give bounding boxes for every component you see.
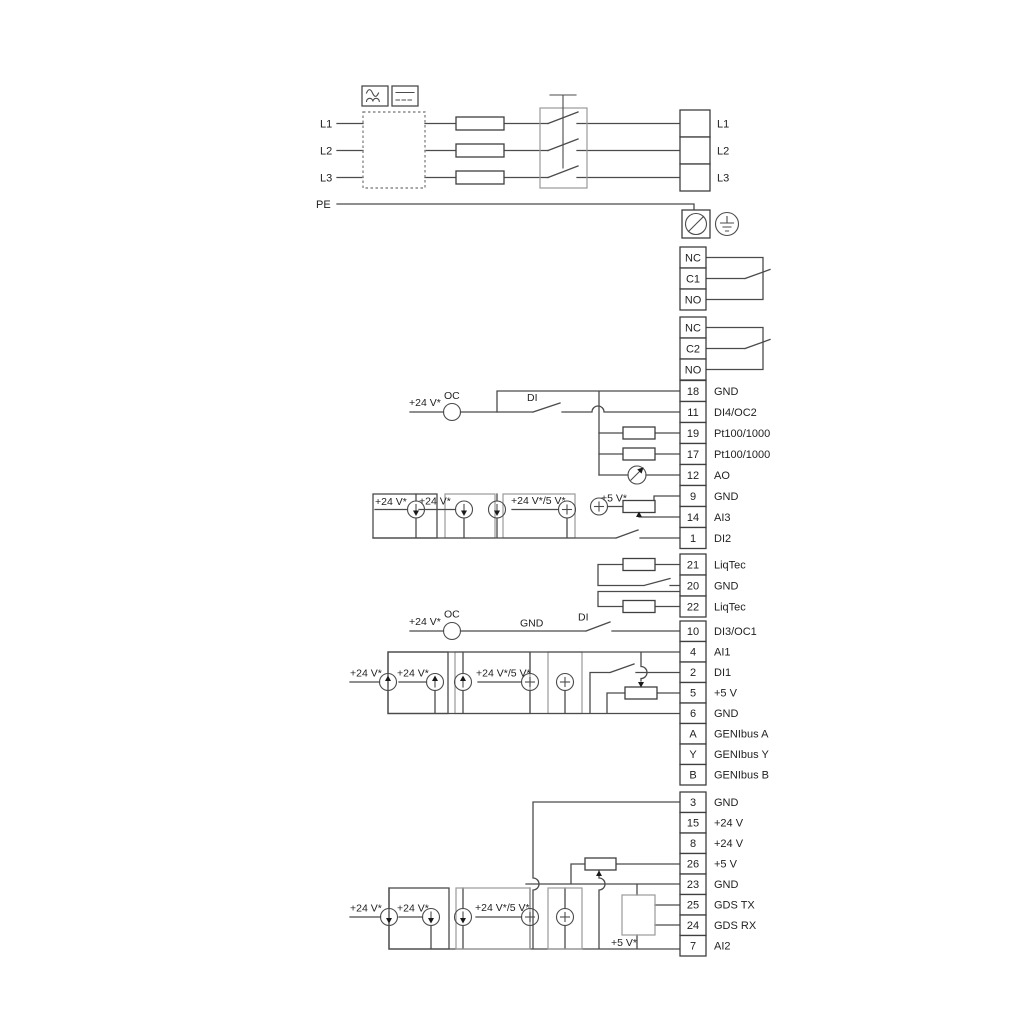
wiper-arrow-icon	[596, 871, 602, 877]
annotation-label: OC	[444, 390, 460, 402]
fuse-l1	[456, 117, 504, 130]
annotation-label: +24 V*	[397, 668, 429, 680]
annotation-label: +24 V*	[397, 903, 429, 915]
fuse-l3	[456, 171, 504, 184]
terminal-number: 21	[687, 559, 699, 571]
annotation-label: +24 V*/5 V*	[475, 902, 530, 914]
liqtec-wiring	[598, 559, 680, 613]
terminal-label: LiqTec	[714, 601, 746, 613]
terminal-label: GND	[714, 879, 739, 891]
annotation-label: +5 V*	[611, 937, 637, 949]
terminal-number: 24	[687, 920, 699, 932]
terminal-number: 25	[687, 900, 699, 912]
annotation-label: +24 V*/5 V*	[511, 495, 566, 507]
terminal-number: 12	[687, 470, 699, 482]
terminal-label: GND	[714, 386, 739, 398]
terminal-label: GDS RX	[714, 920, 757, 932]
terminal-label: DI1	[714, 667, 731, 679]
terminal-label: L3	[717, 172, 729, 184]
terminal-number: 7	[690, 941, 696, 953]
emc-filter-box	[363, 112, 425, 188]
wire-run	[337, 124, 694, 211]
open-collector-icon	[444, 404, 461, 421]
mains-in-label: L3	[320, 173, 332, 185]
annotation-label: DI	[578, 612, 589, 624]
gds-sensor-box	[622, 895, 655, 935]
terminal-block-relay1: NCC1NO	[680, 247, 706, 310]
earth-terminal	[682, 210, 710, 238]
terminal-number: 6	[690, 708, 696, 720]
terminal-label: GENIbus A	[714, 729, 769, 741]
protective-earth-icon	[716, 213, 739, 236]
terminal-number: 2	[690, 667, 696, 679]
mains-section	[337, 86, 739, 238]
relay1-wiring	[706, 258, 770, 300]
annotation-label: OC	[444, 609, 460, 621]
terminal-number: 8	[690, 838, 696, 850]
terminal-number: 22	[687, 601, 699, 613]
terminal-label: GND	[714, 797, 739, 809]
annotation-label: +24 V*	[375, 496, 407, 508]
ac-symbol-icon	[362, 86, 388, 106]
terminal-number: 11	[687, 407, 698, 419]
terminal-number: 4	[690, 647, 696, 659]
terminal-block-io3: 10DI3/OC14AI12DI15+5 V6GNDAGENIbus AYGEN…	[680, 621, 769, 785]
option-bracket	[455, 652, 530, 714]
terminal-number: 5	[690, 688, 696, 700]
annotation-label: DI	[527, 392, 538, 404]
terminal-label: L1	[717, 118, 729, 130]
wire-run	[410, 622, 680, 631]
current-source-icon	[456, 501, 473, 518]
terminal-number: 15	[687, 818, 699, 830]
annotations: L1 L2 L3 PE +24 V* OC DI +24 V* +24 V* +…	[316, 119, 637, 950]
mains-in-label: L2	[320, 146, 332, 158]
wire-run	[706, 258, 770, 300]
terminal-number: 23	[687, 879, 699, 891]
mains-in-label: L1	[320, 119, 332, 131]
terminal-number: NC	[685, 252, 701, 264]
terminal-number: B	[689, 770, 696, 782]
terminal-label: DI3/OC1	[714, 626, 757, 638]
terminal-label: DI4/OC2	[714, 407, 757, 419]
open-collector-icon	[444, 623, 461, 640]
terminal-label: GENIbus Y	[714, 749, 769, 761]
terminal-label: +5 V	[714, 859, 738, 871]
terminal-label: AO	[714, 470, 730, 482]
fuse-l2	[456, 144, 504, 157]
analog-output-meter-icon	[628, 466, 646, 484]
terminal-number: 26	[687, 859, 699, 871]
option-bracket	[456, 888, 530, 949]
terminal-block-relay2: NCC2NO	[680, 317, 706, 380]
wire-run	[410, 403, 680, 412]
terminal-label: LiqTec	[714, 559, 746, 571]
terminal-number: C2	[686, 343, 700, 355]
terminal-block-mains-out: L1L2L3	[680, 110, 729, 191]
wire-run	[350, 802, 680, 949]
terminal-block-io1: 18GND11DI4/OC219Pt100/100017Pt100/100012…	[680, 381, 770, 549]
terminal-number: NC	[685, 322, 701, 334]
terminal-number: 19	[687, 428, 699, 440]
terminal-label: AI2	[714, 941, 731, 953]
terminal-number: A	[689, 729, 697, 741]
current-source-icon	[427, 674, 444, 691]
annotation-label: +24 V*	[419, 496, 451, 508]
terminal-label: L2	[717, 145, 729, 157]
voltage-source-icon	[557, 909, 574, 926]
annotation-label: +24 V*	[409, 397, 441, 409]
wiring-diagram: L1L2L3 NCC1NO NCC2NO 18GND11DI4/OC219Pt1…	[0, 0, 1024, 1024]
terminal-label: DI2	[714, 533, 731, 545]
terminal-number: 9	[690, 491, 696, 503]
wire-run	[350, 652, 680, 714]
terminal-block-io4: 3GND15+24 V8+24 V26+5 V23GND25GDS TX24GD…	[680, 792, 757, 956]
relay2-wiring	[706, 328, 770, 370]
potentiometer	[623, 501, 655, 513]
annotation-label: +24 V*/5 V*	[476, 668, 531, 680]
terminal-label: +5 V	[714, 688, 738, 700]
annotation-label: +5 V*	[601, 493, 627, 505]
terminal-number: 3	[690, 797, 696, 809]
pe-label: PE	[316, 199, 331, 211]
current-source-icon	[455, 909, 472, 926]
terminal-label: +24 V	[714, 818, 744, 830]
terminal-number: Y	[689, 749, 697, 761]
annotation-label: GND	[520, 618, 544, 630]
terminal-cell	[680, 164, 710, 191]
terminal-label: AI1	[714, 647, 731, 659]
terminal-label: GDS TX	[714, 900, 755, 912]
terminal-label: Pt100/1000	[714, 449, 770, 461]
terminal-number: NO	[685, 294, 702, 306]
terminal-number: C1	[686, 273, 700, 285]
terminal-number: 18	[687, 386, 699, 398]
terminal-label: GENIbus B	[714, 770, 769, 782]
annotation-label: +24 V*	[350, 668, 382, 680]
dc-symbol-icon	[392, 86, 418, 106]
terminal-label: GND	[714, 491, 739, 503]
io4-wiring	[350, 802, 680, 949]
annotation-label: +24 V*	[350, 903, 382, 915]
resistor	[623, 601, 655, 613]
terminal-cell	[680, 137, 710, 164]
main-switch	[540, 95, 587, 188]
terminal-number: 20	[687, 580, 699, 592]
terminal-number: 17	[687, 449, 699, 461]
potentiometer	[585, 858, 616, 870]
io1-wiring	[373, 391, 680, 538]
terminal-label: AI3	[714, 512, 731, 524]
annotation-label: +24 V*	[409, 616, 441, 628]
current-source-icon	[455, 674, 472, 691]
terminal-block-liqtec: 21LiqTec20GND22LiqTec	[680, 554, 746, 617]
resistor	[623, 559, 655, 571]
terminal-number: 1	[690, 533, 696, 545]
terminal-label: Pt100/1000	[714, 428, 770, 440]
resistor	[623, 448, 655, 460]
terminal-cell	[680, 110, 710, 137]
wiring-diagram-page: L1L2L3 NCC1NO NCC2NO 18GND11DI4/OC219Pt1…	[0, 0, 1024, 1024]
terminal-label: GND	[714, 708, 739, 720]
potentiometer	[625, 687, 657, 699]
option-bracket	[389, 888, 449, 949]
terminal-number: NO	[685, 364, 702, 376]
terminal-label: GND	[714, 580, 739, 592]
wire-run	[706, 328, 770, 370]
terminal-label: +24 V	[714, 838, 744, 850]
resistor	[623, 427, 655, 439]
voltage-source-icon	[557, 674, 574, 691]
terminal-number: 14	[687, 512, 699, 524]
terminal-number: 10	[687, 626, 699, 638]
